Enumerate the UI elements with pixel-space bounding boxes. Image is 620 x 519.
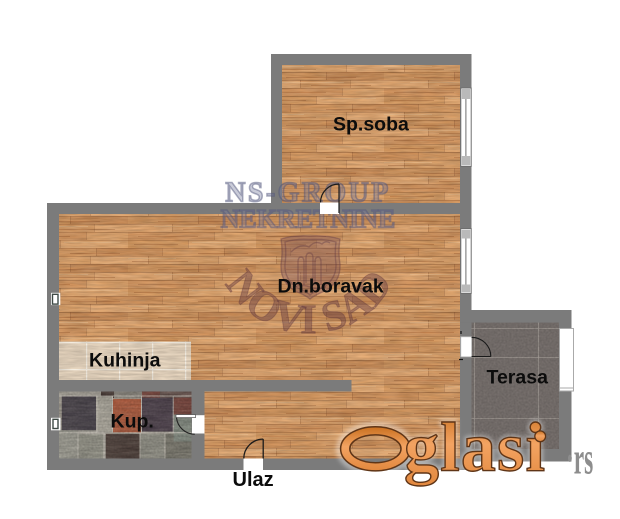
svg-text:Ulaz: Ulaz <box>233 469 274 491</box>
svg-text:NEKRETNINE: NEKRETNINE <box>221 205 396 234</box>
svg-text:Sp.soba: Sp.soba <box>333 114 409 136</box>
svg-text:·rs: ·rs <box>566 433 593 483</box>
svg-text:Kuhinja: Kuhinja <box>89 350 161 372</box>
svg-text:glasi: glasi <box>404 410 546 487</box>
svg-text:Dn.boravak: Dn.boravak <box>278 276 384 298</box>
svg-text:Kup.: Kup. <box>111 411 154 433</box>
svg-text:Terasa: Terasa <box>487 367 549 389</box>
